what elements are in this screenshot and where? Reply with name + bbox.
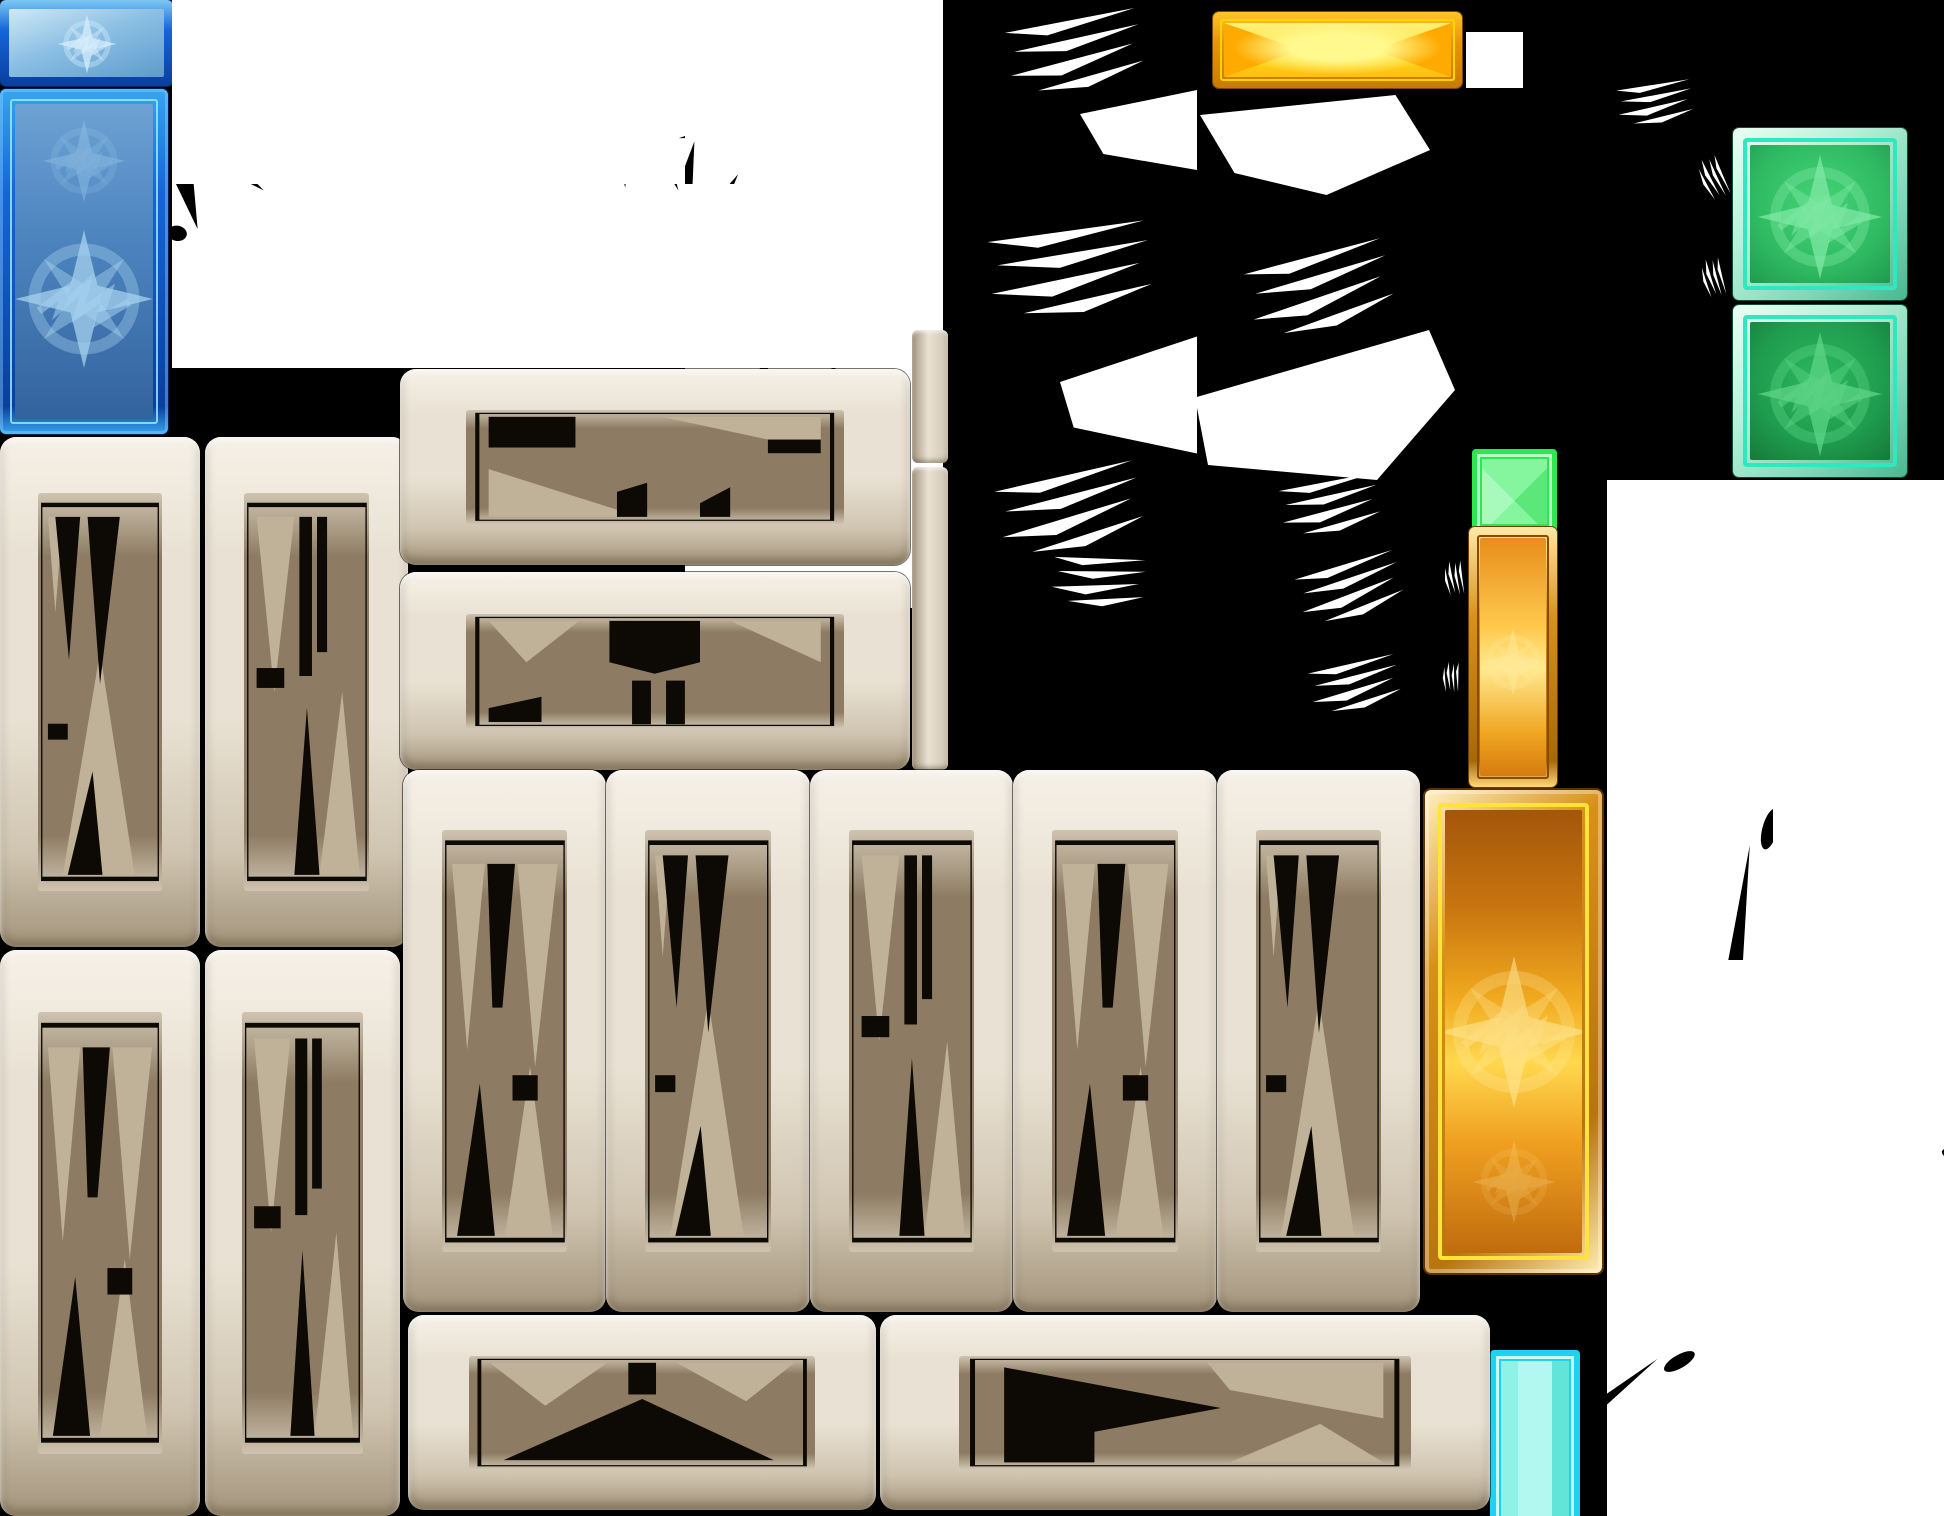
ink-splat-mask-cell [1607,960,1773,1516]
ink-splat-mask-cell [685,0,943,184]
stone-panel-engraving [849,830,975,1253]
stone-panel-engraving [242,1012,363,1454]
white-streak-decal [1227,464,1433,546]
ink-splat-mask-cell [685,184,943,368]
stone-panel-engraving [645,830,772,1253]
white-swatch [1466,32,1523,88]
white-patch-decal [1080,90,1197,170]
stone-panel-vertical [1013,770,1217,1312]
stone-panel-horizontal [880,1315,1490,1510]
orange-banner-large-face [1445,810,1582,1253]
green-gem-face [1750,145,1890,283]
stone-panel-vertical [205,950,400,1516]
stone-panel-engraving [466,614,843,729]
white-streak-decal [1272,646,1438,723]
white-patch-decal [1060,330,1197,460]
stone-panel-engraving [1256,830,1382,1253]
stone-panel-engraving [244,493,370,891]
ink-splat-mask-cell [428,184,685,368]
stone-panel-engraving [442,830,568,1253]
compass-star-icon [39,104,129,221]
texture-atlas-canvas [0,0,1944,1516]
stone-panel-vertical [403,770,606,1312]
blue-banner-tall-face [15,104,153,419]
ink-splat-mask-cell [428,0,685,184]
small-green-tile [1472,449,1557,534]
stone-panel-horizontal [400,572,910,770]
blue-banner-tall [0,89,168,434]
stone-panel-vertical [205,437,408,947]
stone-panel-engraving [38,493,162,891]
gold-bar-glow [1224,23,1451,77]
compass-star-icon [1469,1107,1559,1253]
compass-star-icon [15,224,153,374]
ink-splat-mask-cell [1607,480,1773,960]
green-gem-square-dark [1733,305,1907,477]
white-streak-decal [1428,661,1474,694]
stone-panel-engraving [38,1012,162,1454]
blue-banner-small-face [9,9,164,77]
orange-banner-large [1425,790,1602,1273]
ink-splat-mask-cell [1773,960,1944,1516]
stone-panel-vertical [0,437,200,947]
white-streak-decal [998,547,1199,616]
gold-bar-face [1224,23,1451,77]
cyan-tile [1490,1350,1580,1516]
stone-panel-engraving [1052,830,1179,1253]
stone-panel-horizontal [408,1315,876,1510]
white-streak-decal [1251,538,1449,640]
stone-strip-narrow [912,467,948,770]
compass-star-icon [1753,326,1888,460]
stone-panel-vertical [810,770,1013,1312]
green-gem-square-light [1733,128,1907,300]
ink-splat-mask-cell [172,0,428,184]
white-streak-decal [1583,75,1727,131]
stone-panel-vertical [606,770,810,1312]
ink-splat-mask-cell [1773,480,1944,960]
stone-strip-narrow [912,330,948,463]
blue-banner-small [0,0,173,86]
white-patch-decal [1195,330,1455,480]
compass-star-icon [51,12,123,76]
white-streak-decal [940,214,1201,326]
compass-star-icon [1445,944,1582,1119]
orange-banner-small [1469,527,1557,787]
stone-panel-engraving [469,1356,815,1469]
orange-banner-small-face [1480,538,1546,776]
stone-panel-engraving [466,410,843,524]
compass-star-icon [1480,607,1546,717]
stone-panel-engraving [959,1356,1410,1469]
ink-splat-mask-cell [172,184,428,368]
white-streak-decal [946,0,1204,107]
compass-star-icon [1753,149,1888,283]
stone-panel-vertical [0,950,200,1516]
stone-panel-vertical [1217,770,1420,1312]
gold-bar-button [1213,12,1462,88]
green-gem-face [1750,322,1890,460]
white-streak-decal [1204,228,1436,352]
stone-panel-horizontal [400,369,910,565]
white-patch-decal [1200,95,1430,195]
